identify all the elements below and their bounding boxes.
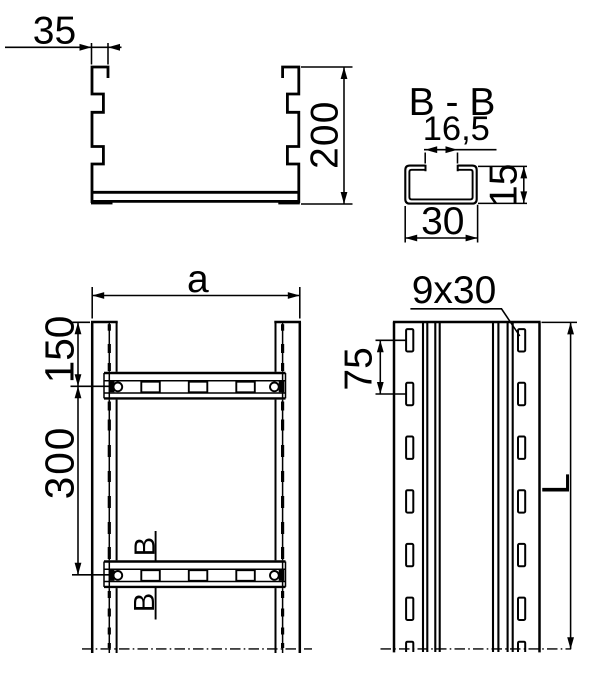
svg-text:B: B (129, 537, 161, 556)
svg-text:a: a (187, 258, 209, 301)
svg-text:200: 200 (303, 100, 346, 169)
svg-text:15: 15 (482, 164, 525, 207)
svg-text:75: 75 (338, 347, 381, 390)
svg-text:L: L (535, 473, 578, 495)
svg-text:30: 30 (421, 200, 464, 243)
svg-text:35: 35 (33, 10, 76, 53)
svg-text:9x30: 9x30 (412, 269, 497, 312)
svg-text:16,5: 16,5 (423, 110, 490, 148)
svg-text:150: 150 (36, 316, 82, 384)
svg-text:300: 300 (36, 426, 82, 500)
svg-text:B: B (129, 593, 161, 612)
